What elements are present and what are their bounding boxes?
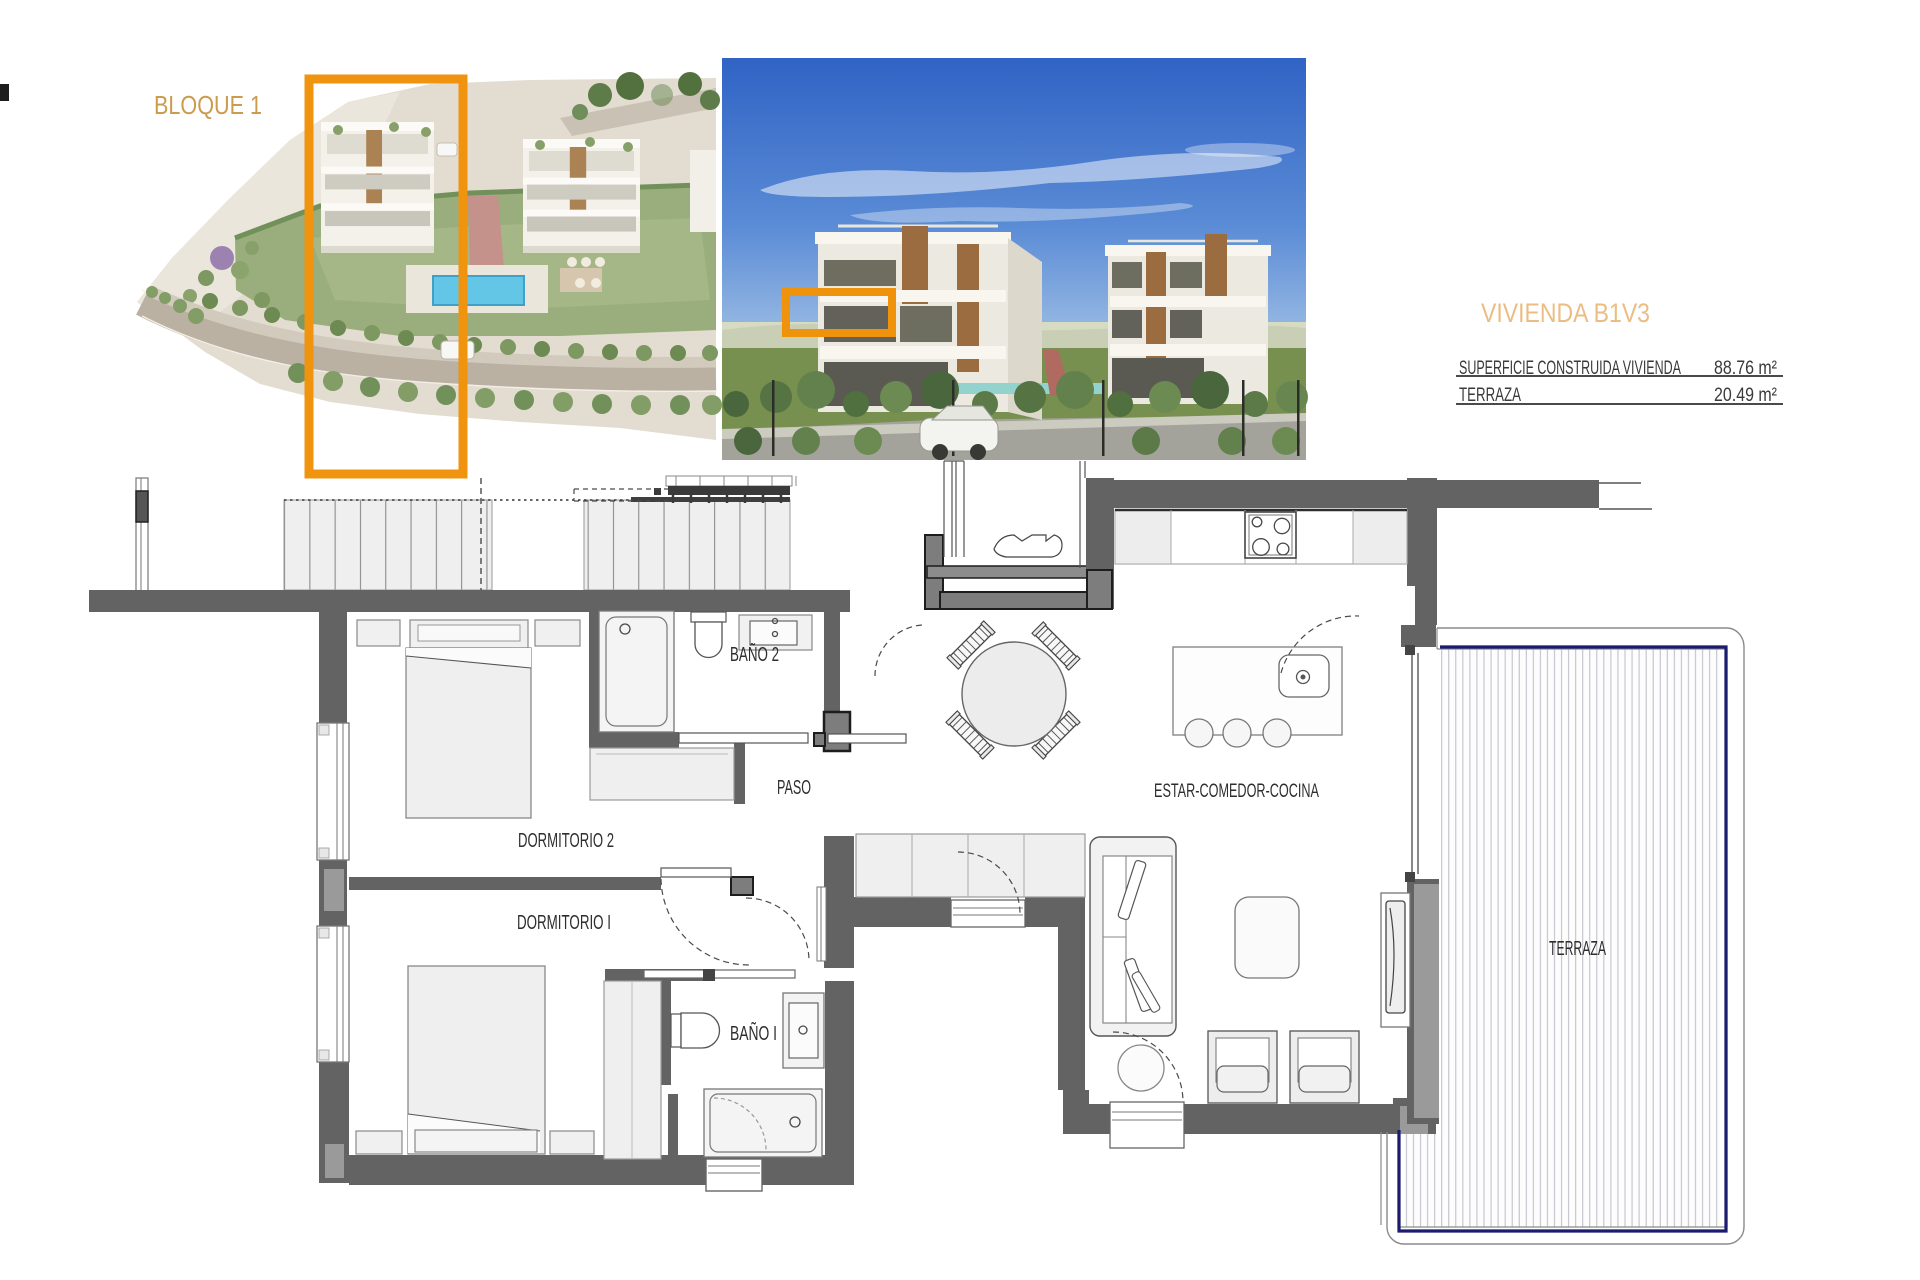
svg-text:VIVIENDA B1V3: VIVIENDA B1V3 (1481, 298, 1650, 328)
svg-text:TERRAZA: TERRAZA (1459, 385, 1521, 406)
svg-text:PASO: PASO (777, 777, 811, 799)
svg-text:BLOQUE 1: BLOQUE 1 (154, 90, 262, 120)
svg-text:ESTAR-COMEDOR-COCINA: ESTAR-COMEDOR-COCINA (1154, 781, 1319, 802)
svg-text:TERRAZA: TERRAZA (1549, 938, 1606, 960)
svg-text:BAÑO I: BAÑO I (730, 1021, 777, 1045)
svg-text:DORMITORIO 2: DORMITORIO 2 (518, 830, 614, 852)
svg-text:20.49 m²: 20.49 m² (1714, 385, 1777, 406)
svg-text:BAÑO 2: BAÑO 2 (730, 642, 779, 666)
svg-text:DORMITORIO I: DORMITORIO I (517, 912, 611, 934)
